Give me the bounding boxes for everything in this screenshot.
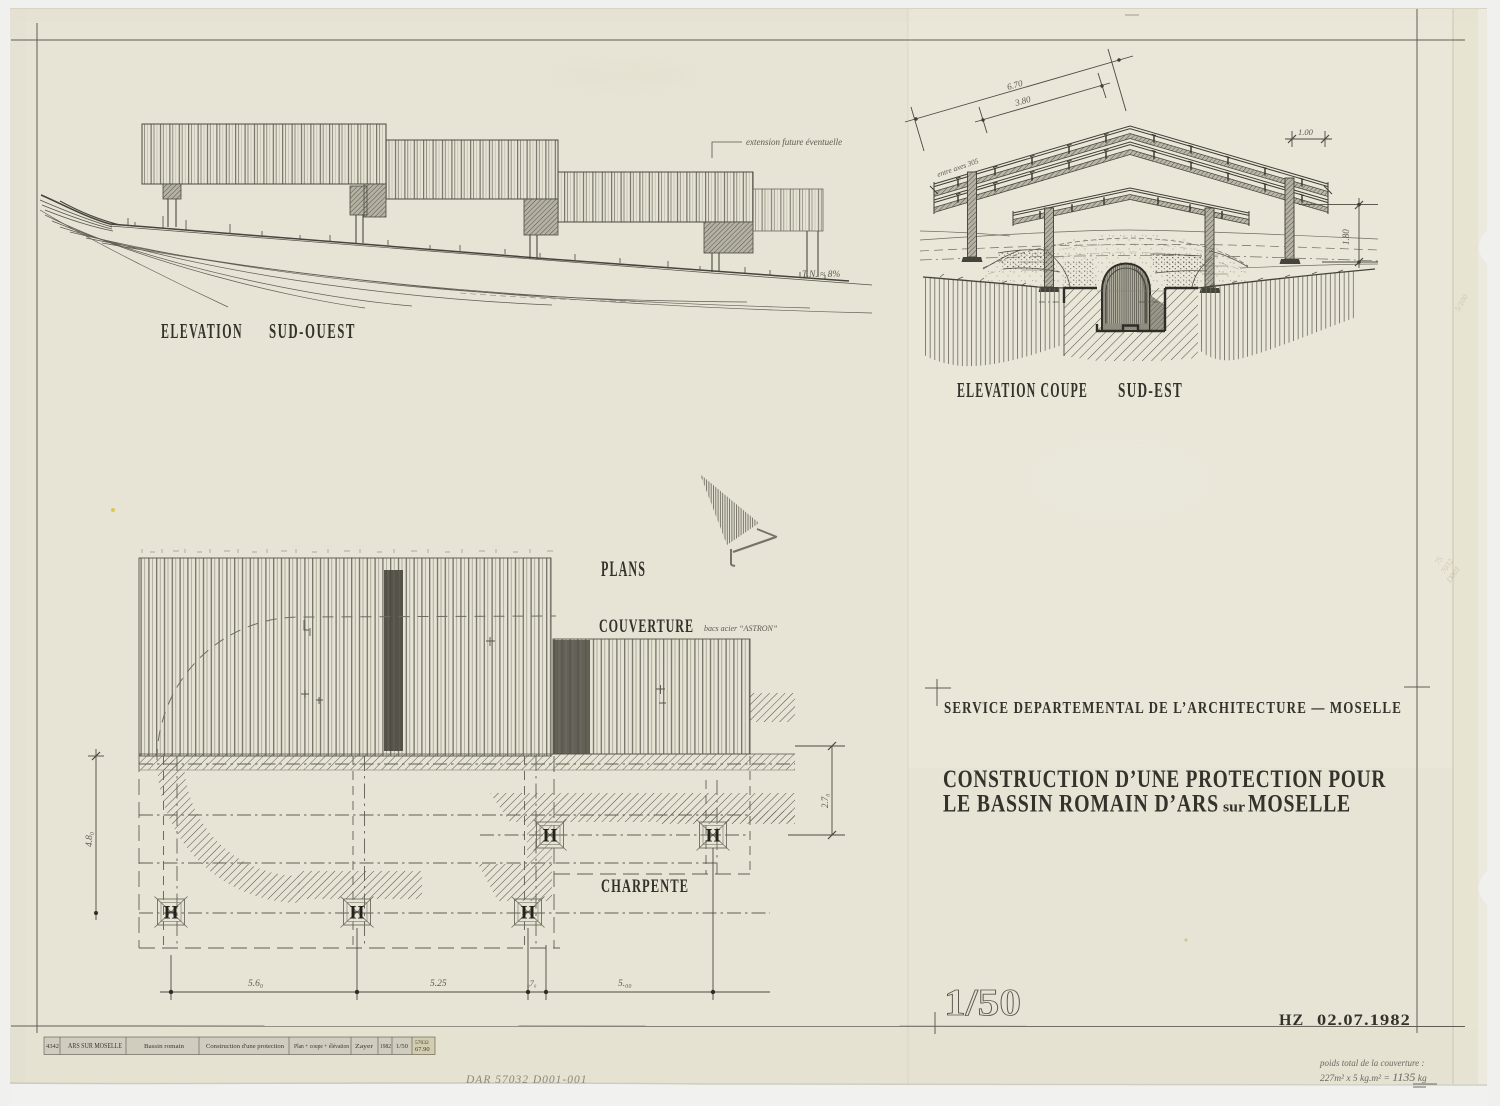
svg-text:₀7₀: ₀7₀ xyxy=(527,979,537,988)
svg-text:1/50: 1/50 xyxy=(944,982,1021,1024)
svg-text:1.80: 1.80 xyxy=(1341,229,1351,245)
svg-text:sur: sur xyxy=(1223,800,1245,816)
svg-text:67.90: 67.90 xyxy=(415,1046,430,1053)
svg-text:DAR 57032 D001-001: DAR 57032 D001-001 xyxy=(465,1074,588,1086)
svg-text:extension future éventuelle: extension future éventuelle xyxy=(746,137,842,147)
svg-text:ELEVATION: ELEVATION xyxy=(161,319,243,343)
svg-text:5.6₀: 5.6₀ xyxy=(248,979,263,989)
svg-text:Zayer: Zayer xyxy=(355,1043,374,1050)
svg-text:Plan + coupe + élévation: Plan + coupe + élévation xyxy=(294,1044,349,1050)
svg-text:CHARPENTE: CHARPENTE xyxy=(601,876,689,897)
svg-text:1/50: 1/50 xyxy=(396,1044,408,1050)
svg-text:1982: 1982 xyxy=(380,1044,391,1050)
svg-text:ELEVATION COUPE: ELEVATION COUPE xyxy=(957,378,1088,402)
svg-text:LE BASSIN ROMAIN D’ARS: LE BASSIN ROMAIN D’ARS xyxy=(943,789,1219,818)
svg-text:SUD-EST: SUD-EST xyxy=(1118,378,1183,402)
svg-text:2.7₀: 2.7₀ xyxy=(820,794,830,808)
svg-text:Construction d'une protection: Construction d'une protection xyxy=(206,1043,285,1050)
svg-text:SUD-OUEST: SUD-OUEST xyxy=(269,319,356,343)
svg-text:H: H xyxy=(706,826,721,847)
svg-text:bacs acier “ASTRON”: bacs acier “ASTRON” xyxy=(704,624,778,633)
svg-text:H: H xyxy=(350,903,365,924)
svg-text:poids total de la couverture :: poids total de la couverture : xyxy=(1319,1058,1424,1068)
svg-text:MOSELLE: MOSELLE xyxy=(1248,789,1351,818)
svg-text:5.₀₀: 5.₀₀ xyxy=(618,979,632,989)
svg-text:HZ: HZ xyxy=(1279,1012,1304,1029)
svg-text:4.8₀: 4.8₀ xyxy=(85,832,95,847)
svg-text:H: H xyxy=(543,826,558,847)
svg-text:T.N. ≈ 8%: T.N. ≈ 8% xyxy=(802,270,840,280)
svg-text:ARS SUR MOSELLE: ARS SUR MOSELLE xyxy=(68,1042,122,1050)
svg-text:5.25: 5.25 xyxy=(430,979,447,989)
svg-text:02.07.1982: 02.07.1982 xyxy=(1317,1012,1411,1029)
svg-text:4342: 4342 xyxy=(46,1043,59,1050)
svg-text:PLANS: PLANS xyxy=(601,556,646,581)
svg-text:COUVERTURE: COUVERTURE xyxy=(599,616,694,637)
svg-text:Bassin romain: Bassin romain xyxy=(144,1043,185,1050)
svg-text:1.00: 1.00 xyxy=(1298,127,1314,137)
svg-text:H: H xyxy=(521,903,536,924)
svg-text:H: H xyxy=(164,903,179,924)
svg-text:SERVICE DEPARTEMENTAL DE L’ARC: SERVICE DEPARTEMENTAL DE L’ARCHITECTURE … xyxy=(944,698,1402,717)
